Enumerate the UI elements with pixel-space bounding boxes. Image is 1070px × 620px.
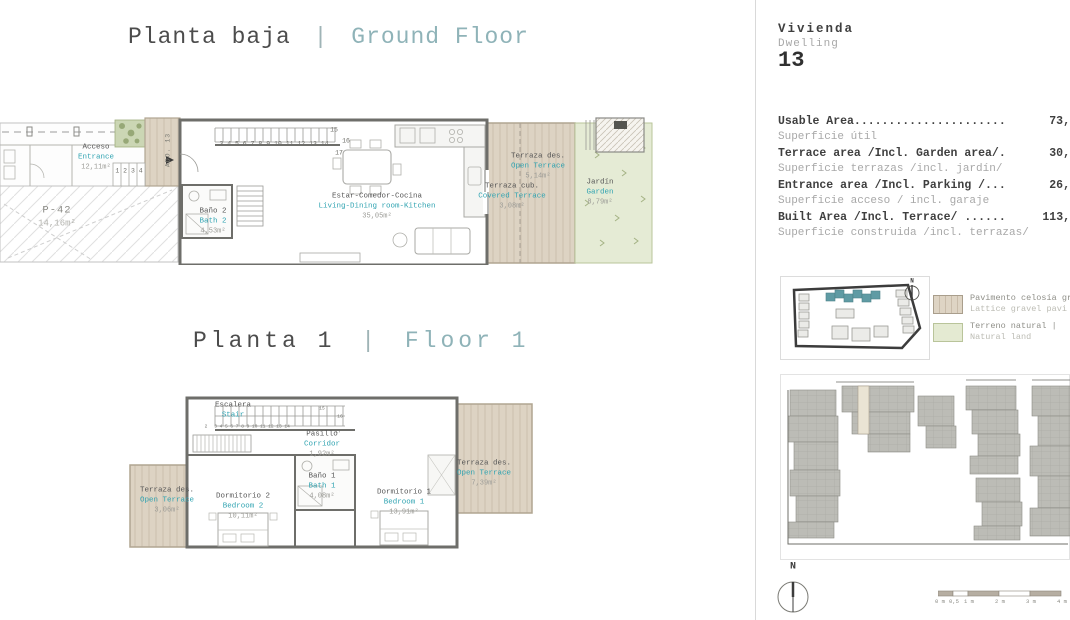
panel-divider bbox=[755, 0, 756, 620]
room-area: 13,91m² bbox=[377, 508, 431, 517]
stair-number-17: 17 bbox=[335, 150, 343, 157]
room-area: 3,08m² bbox=[478, 202, 546, 211]
area-sublabel: Superficie útil bbox=[778, 131, 877, 143]
room-area: 35,05m² bbox=[318, 212, 435, 221]
room-label-bedroom2: Dormitorio 2 Bedroom 2 10,11m² bbox=[216, 493, 270, 522]
room-name-en: Bedroom 1 bbox=[377, 498, 431, 508]
room-label-bath2: Baño 2 Bath 2 4,53m² bbox=[199, 208, 226, 237]
scale-tick-05: 0,5 bbox=[949, 598, 959, 605]
room-name-es: Baño 2 bbox=[199, 208, 226, 218]
room-name-en: Bedroom 2 bbox=[216, 502, 270, 512]
room-label-bath1: Baño 1 Bath 1 4,08m² bbox=[308, 473, 335, 502]
north-label: N bbox=[790, 562, 796, 573]
entry-step-numbers: 1 2 3 4 bbox=[115, 168, 142, 175]
room-name-en: Covered Terrace bbox=[478, 192, 546, 202]
legend-en: Lattice gravel pavi bbox=[970, 304, 1070, 315]
area-value: 113, bbox=[1042, 211, 1070, 224]
room-label-terrace-left: Terraza des. Open Terrace 3,06m² bbox=[140, 487, 194, 516]
ground-floor-title: Planta baja | Ground Floor bbox=[128, 24, 529, 50]
room-label-acceso: Acceso Entrance 12,11m² bbox=[78, 144, 114, 173]
room-name-en: Bath 2 bbox=[199, 217, 226, 227]
room-name-es: Terraza des. bbox=[511, 153, 565, 163]
room-name-es: Dormitorio 1 bbox=[377, 489, 431, 499]
room-name-en: Garden bbox=[586, 188, 613, 198]
room-name-en: Bath 1 bbox=[308, 482, 335, 492]
dwelling-number: 13 bbox=[778, 48, 804, 73]
area-label: Built Area /Incl. Terrace/ ...... bbox=[778, 211, 1006, 224]
room-area: 4,53m² bbox=[199, 227, 226, 236]
room-name-es: P-42 bbox=[38, 204, 76, 218]
area-sublabel: Superficie construida /incl. terrazas/ bbox=[778, 227, 1029, 239]
first-floor-title: Planta 1 | Floor 1 bbox=[193, 328, 529, 354]
area-row-entrance: Entrance area /Incl. Parking /... 26, bbox=[778, 179, 1070, 192]
room-name-es: Terraza des. bbox=[140, 487, 194, 497]
room-label-open-terrace: Terraza des. Open Terrace 5,14m² bbox=[511, 153, 565, 182]
area-label: Usable Area...................... bbox=[778, 115, 1006, 128]
area-sublabel: Superficie terrazas /incl. jardín/ bbox=[778, 163, 1002, 175]
north-compass-icon bbox=[775, 570, 811, 616]
room-area: 10,11m² bbox=[216, 512, 270, 521]
room-name-es: Jardín bbox=[586, 179, 613, 189]
legend-item-lattice: Pavimento celosía gr Lattice gravel pavi bbox=[970, 293, 1070, 315]
scale-tick-0: 0 m bbox=[935, 598, 945, 605]
area-row-usable: Usable Area...................... 73, bbox=[778, 115, 1070, 128]
scale-tick-3: 3 m bbox=[1026, 598, 1036, 605]
north-label-keyplan: N bbox=[910, 278, 914, 285]
room-area: 1,92m² bbox=[304, 450, 340, 459]
room-name-es: Baño 1 bbox=[308, 473, 335, 483]
area-row-built: Built Area /Incl. Terrace/ ...... 113, bbox=[778, 211, 1070, 224]
room-name-es: Acceso bbox=[78, 144, 114, 154]
room-area: 8,79m² bbox=[586, 198, 613, 207]
room-name-es: Dormitorio 2 bbox=[216, 493, 270, 503]
title-en: Floor 1 bbox=[405, 328, 530, 354]
room-name-en: Open Terrace bbox=[140, 496, 194, 506]
area-sublabel: Superficie acceso / incl. garaje bbox=[778, 195, 989, 207]
title-separator: | bbox=[306, 24, 337, 50]
scale-tick-1: 1 m bbox=[964, 598, 974, 605]
room-label-garden: Jardín Garden 8,79m² bbox=[586, 179, 613, 208]
ground-floor-plan-drawing bbox=[0, 112, 656, 265]
legend-es: Pavimento celosía gr bbox=[970, 293, 1070, 304]
room-area: 5,14m² bbox=[511, 172, 565, 181]
room-label-bedroom1: Dormitorio 1 Bedroom 1 13,91m² bbox=[377, 489, 431, 518]
title-separator: | bbox=[353, 328, 387, 354]
room-label-parking: P-42 14,16m² bbox=[38, 204, 76, 229]
lattice-gravel-swatch bbox=[933, 295, 963, 314]
stair-number-17: 17 bbox=[335, 430, 340, 435]
area-label: Entrance area /Incl. Parking /... bbox=[778, 179, 1006, 192]
stair-number-16: 16 bbox=[342, 138, 350, 145]
legend-es: Terreno natural | bbox=[970, 321, 1057, 332]
room-area: 7,39m² bbox=[457, 479, 511, 488]
room-label-covered-terrace: Terraza cub. Covered Terrace 3,08m² bbox=[478, 183, 546, 212]
access-tag: ADO. 13 bbox=[165, 133, 172, 167]
site-plan-drawing bbox=[780, 374, 1070, 560]
room-label-living: Estar-Comedor-Cocina Living-Dining room-… bbox=[318, 193, 435, 222]
room-area: 3,06m² bbox=[140, 506, 194, 515]
site-key-plan bbox=[780, 276, 930, 360]
area-value: 26, bbox=[1049, 179, 1070, 192]
room-name-en: Open Terrace bbox=[457, 469, 511, 479]
area-value: 30, bbox=[1049, 147, 1070, 160]
room-area: 4,08m² bbox=[308, 492, 335, 501]
stair-number-15: 15 bbox=[319, 407, 324, 412]
room-name-en: Corridor bbox=[304, 440, 340, 450]
room-name-en: Living-Dining room-Kitchen bbox=[318, 202, 435, 212]
room-name-es: Estar-Comedor-Cocina bbox=[318, 193, 435, 203]
room-label-stair: Escalera Stair bbox=[215, 401, 251, 421]
legend-item-natural: Terreno natural | Natural land bbox=[970, 321, 1057, 343]
area-label: Terrace area /Incl. Garden area/. bbox=[778, 147, 1006, 160]
scale-tick-2: 2 m bbox=[995, 598, 1005, 605]
room-area: 14,16m² bbox=[38, 218, 76, 230]
title-es: Planta 1 bbox=[193, 328, 335, 354]
room-name-en: Stair bbox=[215, 411, 251, 421]
room-name-en: Open Terrace bbox=[511, 162, 565, 172]
title-en: Ground Floor bbox=[351, 24, 529, 50]
stair-number-2: 2 bbox=[205, 425, 208, 430]
room-name-en: Entrance bbox=[78, 153, 114, 163]
area-row-terrace: Terrace area /Incl. Garden area/. 30, bbox=[778, 147, 1070, 160]
scale-tick-4: 4 m bbox=[1057, 598, 1067, 605]
vivienda-label: Vivienda bbox=[778, 22, 854, 36]
stair-tread-numbers: 3 4 5 6 7 8 9 10 11 12 13 14 bbox=[214, 425, 290, 430]
area-value: 73, bbox=[1049, 115, 1070, 128]
stair-number-16: 16 bbox=[337, 415, 342, 420]
stair-tread-numbers: 3 4 5 6 7 8 9 10 11 12 13 14 bbox=[219, 141, 328, 148]
floor-plan-sheet: Planta baja | Ground Floor Planta 1 | Fl… bbox=[0, 0, 1070, 620]
room-name-es: Escalera bbox=[215, 401, 251, 411]
stair-number-15: 15 bbox=[330, 127, 338, 134]
room-name-es: Terraza des. bbox=[457, 460, 511, 470]
room-name-es: Terraza cub. bbox=[478, 183, 546, 193]
room-area: 12,11m² bbox=[78, 163, 114, 172]
legend-en: Natural land bbox=[970, 332, 1057, 343]
natural-land-swatch bbox=[933, 323, 963, 342]
room-label-corridor: Pasillo Corridor 1,92m² bbox=[304, 431, 340, 460]
room-label-terrace-right: Terraza des. Open Terrace 7,39m² bbox=[457, 460, 511, 489]
title-es: Planta baja bbox=[128, 24, 291, 50]
